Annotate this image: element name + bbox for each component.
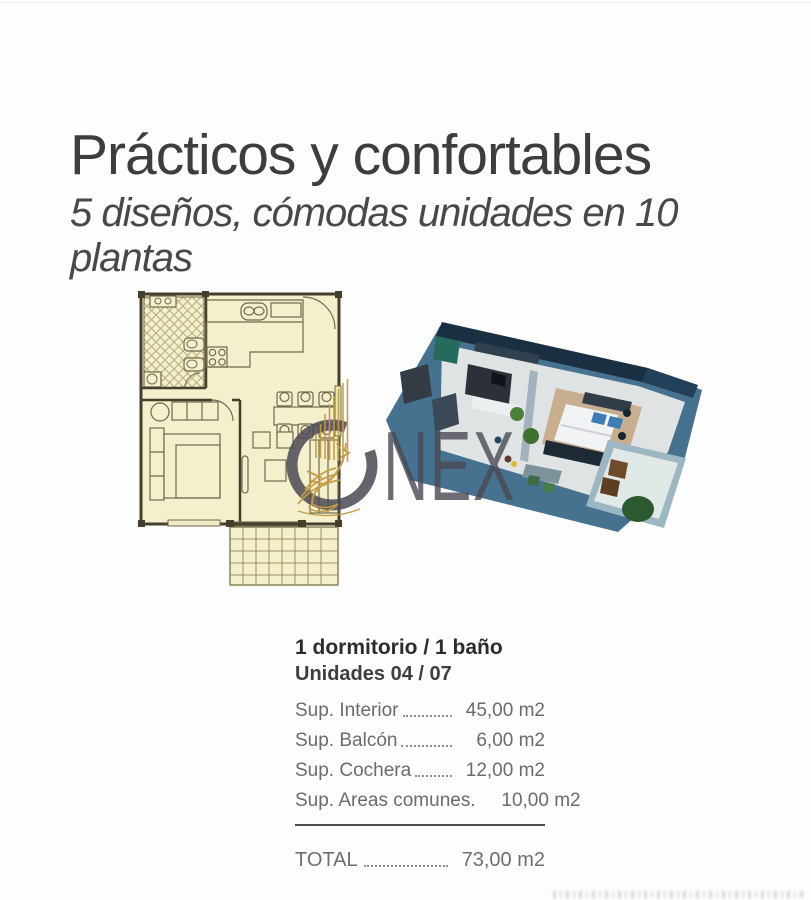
- leader-dots: [415, 775, 452, 777]
- area-label: Sup. Balcón: [295, 730, 397, 752]
- area-value: 12,00 m2: [457, 760, 545, 782]
- total-value: 73,00 m2: [453, 849, 545, 872]
- floorplan-2d: [138, 288, 350, 590]
- area-row-cochera: Sup. Cochera 12,00 m2: [295, 752, 545, 782]
- page-title: Prácticos y confortables: [70, 126, 770, 186]
- area-label: Sup. Cochera: [295, 760, 411, 782]
- leader-dots: [401, 745, 452, 747]
- render-3d-shapes: [386, 322, 702, 532]
- area-value: 45,00 m2: [457, 700, 545, 722]
- top-hairline: [0, 2, 811, 3]
- area-row-interior: Sup. Interior 45,00 m2: [295, 692, 545, 722]
- render-3d-isometric: [380, 312, 722, 540]
- page-subtitle: 5 diseños, cómodas unidades en 10 planta…: [70, 191, 800, 281]
- brochure-page: Prácticos y confortables 5 diseños, cómo…: [0, 0, 811, 900]
- total-divider: [295, 824, 545, 826]
- unit-card: 1 dormitorio / 1 baño Unidades 04 / 07 S…: [295, 634, 545, 872]
- plan-balcony: [230, 527, 338, 585]
- area-value: 10,00 m2: [493, 790, 581, 812]
- area-row-comunes: Sup. Areas comunes. 10,00 m2: [295, 782, 545, 812]
- total-label: TOTAL: [295, 849, 358, 872]
- total-row: TOTAL 73,00 m2: [295, 842, 545, 872]
- unit-title: 1 dormitorio / 1 baño: [295, 634, 545, 661]
- leader-dots: [403, 715, 453, 717]
- area-label: Sup. Interior: [295, 700, 399, 722]
- plan-bathroom: [144, 296, 204, 388]
- area-label: Sup. Areas comunes.: [295, 790, 476, 812]
- area-row-balcon: Sup. Balcón 6,00 m2: [295, 722, 545, 752]
- leader-dots: [364, 865, 448, 867]
- unit-units-line: Unidades 04 / 07: [295, 661, 545, 688]
- area-value: 6,00 m2: [457, 730, 545, 752]
- cutoff-text-artifact: [553, 891, 805, 898]
